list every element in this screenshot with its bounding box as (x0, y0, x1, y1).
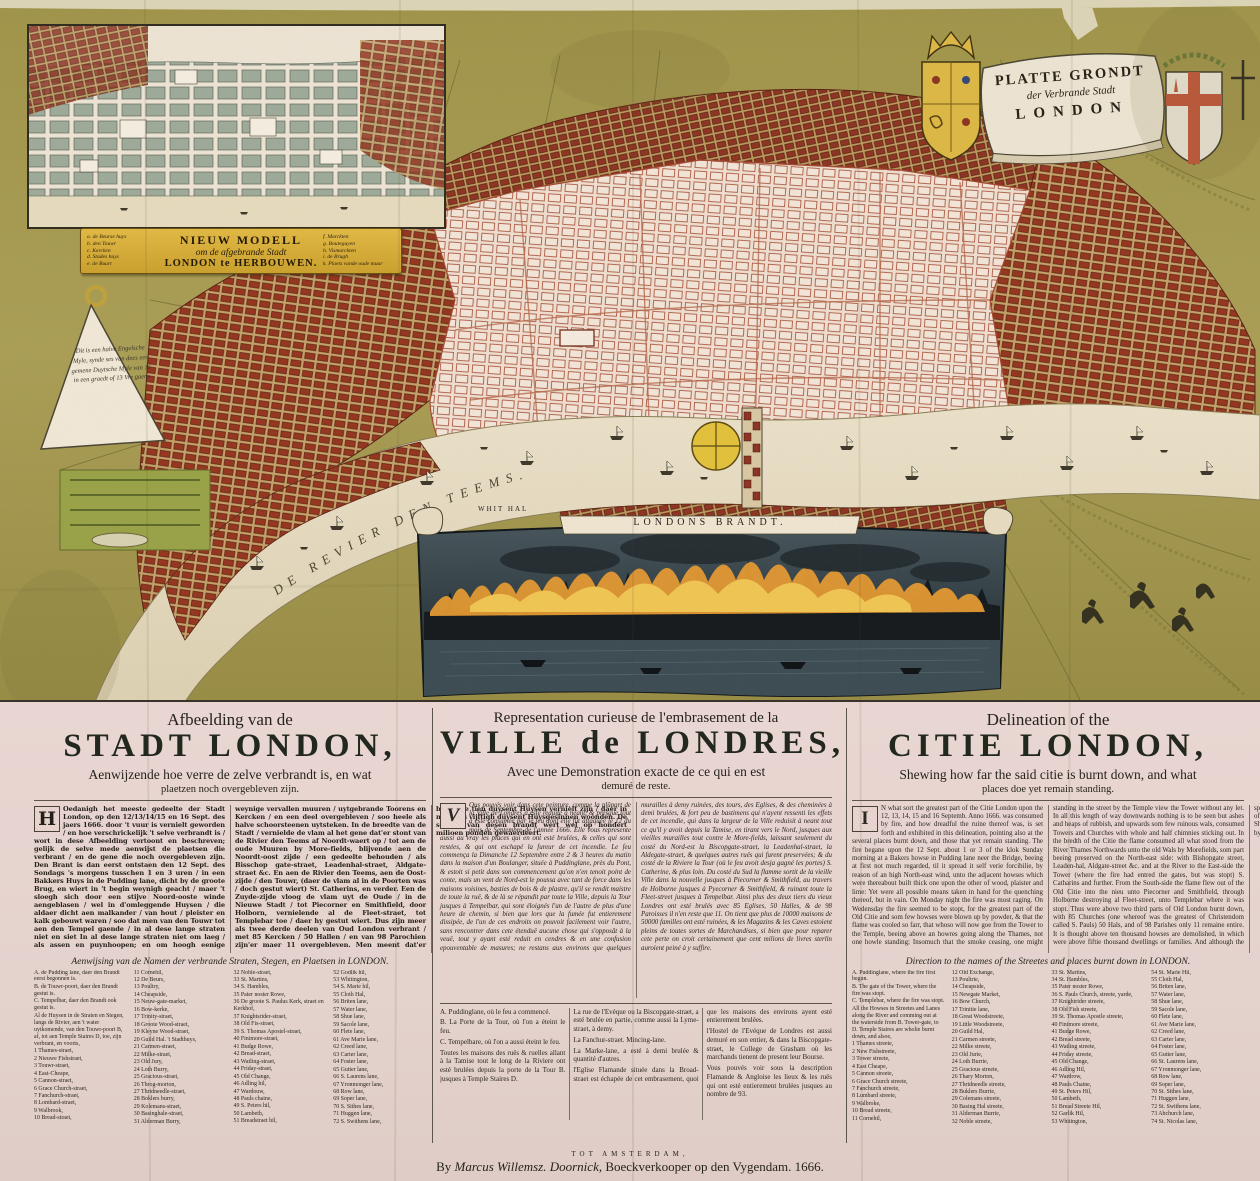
list-item: 12 Old Exchange, (952, 970, 1045, 977)
list-item: 33 St. Martins, (1052, 970, 1145, 977)
list-item: 53 Whitington, (1052, 1119, 1145, 1126)
list-item: 50 Lambeth, (234, 1111, 327, 1118)
list-item: 17 Trinity-straet, (134, 1014, 227, 1021)
french-column: Representation curieuse de l'embrasement… (440, 710, 832, 1120)
list-item: 17 Trinitie lane, (952, 1007, 1045, 1014)
list-item: B. La Porte de la Tour, où l'on a éteint… (440, 1018, 565, 1036)
list-item: 58 Shue lane, (1151, 999, 1244, 1006)
list-item: 68 Row lane, (333, 1089, 426, 1096)
list-item: 56 Briten lane, (333, 999, 426, 1006)
list-item: 46 Adling hil, (234, 1081, 327, 1088)
list-item: 13 Poultrie, (952, 977, 1045, 984)
list-item: 57 Water lane, (333, 1007, 426, 1014)
list-item: 47 Wardouw, (234, 1089, 327, 1096)
list-item: 40 Finimore-straet, (234, 1036, 327, 1043)
french-title: VILLE de LONDRES, (440, 725, 832, 762)
list-item: 52 Godlik hil, (333, 970, 426, 977)
list-item: 54 St. Marie Hil, (1151, 970, 1244, 977)
list-item: La Marke-lane, a esté à demi brulée & qu… (573, 1047, 698, 1065)
list-item: 9 Walbrook, (34, 1108, 127, 1115)
list-item: 30 Basing Hal streete, (952, 1104, 1045, 1111)
list-item: C. Tempelbare, où l'on a aussi éteint le… (440, 1038, 565, 1047)
list-item: 1 Thames-straet, (34, 1048, 127, 1055)
list-item: g. Bouteguyen (323, 241, 395, 248)
list-item: 55 Cloth Hal, (1151, 977, 1244, 984)
list-item: 38 Old Fis-straet, (234, 1021, 327, 1028)
list-item: 37 Knightrider streete, (1052, 999, 1145, 1006)
dutch-title: STADT LONDON, (34, 728, 426, 765)
list-item: 23 Old Jury, (134, 1059, 227, 1066)
list-item: 40 Finimore streete, (1052, 1022, 1145, 1029)
inset-legend-right: f. Marckteng. Bouteguyenh. Vismarckteni.… (323, 234, 395, 269)
dutch-subtitle2: plaetzen noch overgebleven zijn. (34, 784, 426, 795)
list-item: 9 Walbroke, (852, 1101, 945, 1108)
list-item: k. Plaets vande oude muur (323, 261, 395, 268)
dutch-subtitle: Aenwijzende hoe verre de zelve verbrandt… (34, 767, 426, 783)
list-item: B. de Touwr-poort, daer den Brandt gestu… (34, 984, 127, 998)
dutch-kicker: Afbeelding van de (34, 710, 426, 730)
list-item: 21 Carmen streete, (952, 1037, 1045, 1044)
imprint-suffix: Boeckverkooper op den Vygendam. 1666. (602, 1159, 824, 1174)
list-item: 5 Cannon-straet, (34, 1078, 127, 1085)
list-item: 21 Carmen-straet, (134, 1044, 227, 1051)
inset-title-banner: a. de Beurse huysb. den Touwrc. Kerckend… (80, 228, 402, 274)
list-item: 26 Thary Morton, (952, 1074, 1045, 1081)
list-item: 7 Fanchurch-straet, (34, 1093, 127, 1100)
list-item: 49 S. Peters hil, (234, 1103, 327, 1110)
list-item: b. den Touwr (87, 241, 159, 248)
list-item: 10 Bread streete, (852, 1108, 945, 1115)
list-item: 22 Milke streete, (952, 1044, 1045, 1051)
french-notes: A. Puddinglane, où le feu a commencé.B. … (440, 1008, 832, 1120)
list-item: A. Puddinglane, où le feu a commencé. (440, 1008, 565, 1017)
imprint-name: Marcus Willemsz. Doornick, (455, 1159, 603, 1174)
list-item: C. Tempelbar, daer den Brandt ook gestut… (34, 998, 127, 1012)
column-rule (846, 708, 847, 1143)
list-item: 71 Huggen lane, (1151, 1096, 1244, 1103)
list-item: 31 Alderman Burrie, (952, 1111, 1045, 1118)
list-item: 25 Gracious streete, (952, 1067, 1045, 1074)
dutch-body-col1: Oedanigh het meeste gedeelte der Stadt L… (34, 805, 225, 942)
column-rule (432, 708, 433, 1143)
list-item: La Fanchur-straet. Mincing-lane. (573, 1036, 698, 1045)
dutch-list-heading: Aenwijsing van de Namen der verbrande St… (34, 957, 426, 967)
list-item: 54 S. Marie hil, (333, 984, 426, 991)
english-subtitle2: places doe yet remain standing. (852, 784, 1244, 795)
map-sheet: DE REVIER DEN TEEMS. (0, 0, 1260, 1181)
list-item: 3 Touwr-straet, (34, 1063, 127, 1070)
list-item: 29 Kolemans-straet, (134, 1104, 227, 1111)
list-item: 47 Wardrow, (1052, 1074, 1145, 1081)
list-item: 3 Tower streete, (852, 1056, 945, 1063)
list-item: 39 S. Thomas Apostel-straet, (234, 1029, 327, 1036)
list-item: 46 Adling Hil, (1052, 1067, 1145, 1074)
map-title-banner: PLATTE GRONDT der Verbrande Stadt LONDON (989, 63, 1154, 152)
list-item: 51 Breadstraet hil, (234, 1118, 327, 1125)
list-item: 33 St. Martins, (234, 977, 327, 984)
list-item: 48 Pauls chaine, (234, 1096, 327, 1103)
list-item: 4 East-Cheape, (34, 1071, 127, 1078)
list-item: 41 Budge Rowe, (234, 1044, 327, 1051)
english-title: CITIE LONDON, (852, 728, 1244, 765)
list-item: 24 Loth Burrie, (952, 1059, 1045, 1066)
list-item: A. Puddinglane, where the fire first beg… (852, 970, 945, 984)
list-item: 37 Knightsrider-straet, (234, 1014, 327, 1021)
list-item: 50 Lambeth, (1052, 1096, 1145, 1103)
list-item: 61 Ave Marie lane, (333, 1037, 426, 1044)
list-item: 16 Bow-kerke, (134, 1007, 227, 1014)
list-item: 56 Briten lane, (1151, 984, 1244, 991)
list-item: 59 Sacole lane, (333, 1022, 426, 1029)
list-item: 69 Soper lane, (333, 1096, 426, 1103)
list-item: 41 Budge Rowe, (1052, 1029, 1145, 1036)
list-item: 8 Lombard-straet, (34, 1100, 127, 1107)
whitehall-label: WHIT HAL (478, 505, 528, 513)
list-item: 38 Old Fish streete, (1052, 1007, 1145, 1014)
list-item: i. de Brugh (323, 254, 395, 261)
list-item: 67 Yronmonger lane, (1151, 1067, 1244, 1074)
list-item: 19 Kleyne Wood-straet, (134, 1029, 227, 1036)
list-item: 66 St. Laurens lane, (1151, 1059, 1244, 1066)
list-item: 27 Thridneedle-straet, (134, 1089, 227, 1096)
french-subtitle2: demuré de reste. (440, 781, 832, 792)
list-item: 14 Cheapside, (134, 992, 227, 999)
list-item: 15 Neuw-gate-market, (134, 999, 227, 1006)
dutch-dropcap: H (34, 806, 60, 832)
list-item: 34 St. Hambles, (1052, 977, 1145, 984)
list-item: 11 Cornehil, (852, 1116, 945, 1123)
rule (440, 1003, 832, 1004)
list-item: Al de Huysen in de Straten en Stegen, la… (34, 1013, 127, 1048)
list-item: 20 Guild Hal. 't Stadthuys, (134, 1037, 227, 1044)
english-body: IN what sort the greatest part of the Ci… (852, 805, 1244, 953)
list-item: 42 Bread-straet, (234, 1051, 327, 1058)
list-item: 65 Gutter lane, (1151, 1052, 1244, 1059)
list-item: 53 Whitington, (333, 977, 426, 984)
list-item: All the Howses in Streetes and Lanes alo… (852, 1006, 945, 1041)
dutch-body: HOedanigh het meeste gedeelte der Stadt … (34, 805, 426, 953)
french-subtitle: Avec une Demonstration exacte de ce qui … (440, 764, 832, 780)
list-item: 27 Thridneedle streete, (952, 1082, 1045, 1089)
list-item: 68 Row lane, (1151, 1074, 1244, 1081)
list-item: La rue de l'Evéque ou la Biscopgate-stra… (573, 1008, 698, 1034)
inset-title-line3: LONDON te HERBOUWEN. (159, 258, 323, 269)
list-item: l'Hostel de l'Evéque de Londres est auss… (707, 1027, 832, 1062)
list-item: 8 Lumbard streete, (852, 1093, 945, 1100)
scale-note: Dit is een halve Engelsche Myle, synde s… (55, 342, 167, 387)
english-subtitle: Shewing how far the said citie is burnt … (852, 767, 1244, 783)
list-item: 60 Flete lane, (333, 1029, 426, 1036)
inset-title: NIEUW MODELL om de afgebrande Stadt LOND… (159, 233, 323, 269)
list-item: 45 Old Change, (1052, 1059, 1145, 1066)
list-item: 34 S. Hambles, (234, 984, 327, 991)
list-item: 26 Throg-morton, (134, 1082, 227, 1089)
list-item: 29 Colemans streete, (952, 1096, 1045, 1103)
list-item: 13 Poultry, (134, 984, 227, 991)
list-item: 43 Watling-straet, (234, 1059, 327, 1066)
list-item: 35 Pater noster Rowe, (1052, 984, 1145, 991)
list-item: 6 Grace Church-straet, (34, 1086, 127, 1093)
english-column: Delineation of the CITIE LONDON, Shewing… (852, 710, 1244, 1128)
list-item: 5 Cannon streete, (852, 1071, 945, 1078)
list-item: 28 Boklers burry, (134, 1096, 227, 1103)
list-item: h. Vismarckten (323, 248, 395, 255)
list-item: c. Kercken (87, 248, 159, 255)
list-item: 16 Bow Church, (952, 999, 1045, 1006)
list-item: 65 Gutter lane, (333, 1067, 426, 1074)
list-item: 72 St. Swithens lane, (1151, 1104, 1244, 1111)
list-item: 70 St. Sithes lane, (1151, 1089, 1244, 1096)
list-item: 44 Friday streete, (1052, 1052, 1145, 1059)
english-dropcap: I (852, 806, 878, 832)
list-item: 18 Great Woodstreete, (952, 1014, 1045, 1021)
inset-legend-left: a. de Beurse huysb. den Touwrc. Kerckend… (87, 234, 159, 269)
list-item: 59 Sacole lane, (1151, 1007, 1244, 1014)
french-body: VOus pouvés voir dans cete peinture, com… (440, 802, 832, 998)
list-item: 22 Milke-straet, (134, 1052, 227, 1059)
list-item: 63 Carter lane, (333, 1052, 426, 1059)
list-item: 10 Bread-straet, (34, 1115, 127, 1122)
list-item: 2 New Fishstreete, (852, 1049, 945, 1056)
list-item: 20 Guild Hal, (952, 1029, 1045, 1036)
imprint-place: TOT AMSTERDAM, (330, 1150, 930, 1158)
list-item: d. Stades huys (87, 254, 159, 261)
list-item: 58 Shue lane, (333, 1014, 426, 1021)
list-item: A. de Pudding lane, daer den Brandt eers… (34, 970, 127, 984)
list-item: 4 East Cheape, (852, 1064, 945, 1071)
list-item: 15 Newgate Market, (952, 992, 1045, 999)
rule (440, 797, 832, 798)
list-item: 60 Flete lane, (1151, 1014, 1244, 1021)
list-item: a. de Beurse huys (87, 234, 159, 241)
list-item: 48 Pauls Chaine, (1052, 1082, 1145, 1089)
list-item: 32 Noble streete, (952, 1119, 1045, 1126)
list-item: C. Templebar, where the fire was stopt. (852, 998, 945, 1005)
list-item: e. de Buurt (87, 261, 159, 268)
list-item: 70 S. Sithes lane, (333, 1104, 426, 1111)
english-list-heading: Direction to the names of the Streetes a… (852, 957, 1244, 967)
list-item: 32 Noble-straet, (234, 970, 327, 977)
list-item: 36 S. Pauls Church, streete, yarde, (1052, 992, 1145, 999)
inset-title-line2: om de afgebrande Stadt (159, 248, 323, 258)
rule (852, 800, 1244, 801)
list-item: 24 Loth Burry, (134, 1067, 227, 1074)
list-item: 14 Cheapside, (952, 984, 1045, 991)
list-item: 49 St. Peters Hil, (1052, 1089, 1145, 1096)
dutch-column: Afbeelding van de STADT LONDON, Aenwijze… (34, 710, 426, 1128)
list-item: 55 Cloth Hal, (333, 992, 426, 999)
list-item: 62 Creed lane, (1151, 1029, 1244, 1036)
list-item: 63 Carter lane, (1151, 1037, 1244, 1044)
list-item: 42 Bread streete, (1052, 1037, 1145, 1044)
list-item: 7 Fanchurch streete, (852, 1086, 945, 1093)
list-item: 45 Old Change, (234, 1074, 327, 1081)
list-item: B. The gate of the Tower, where the fire… (852, 984, 945, 998)
list-item: 30 Basinghale-straet, (134, 1111, 227, 1118)
list-item: 12 De Beurs, (134, 977, 227, 984)
list-item: 64 Foster lane, (333, 1059, 426, 1066)
dutch-street-list: A. de Pudding lane, daer den Brandt eers… (34, 970, 426, 1128)
english-body-col2: this length of way downwards nothing is … (1053, 805, 1260, 947)
list-item: 52 Garlik Hil, (1052, 1111, 1145, 1118)
list-item: 6 Grace Church streete, (852, 1079, 945, 1086)
list-item: 43 Watling streete, (1052, 1044, 1145, 1051)
list-item: 25 Gracious-straet, (134, 1074, 227, 1081)
imprint-by: By (436, 1159, 454, 1174)
list-item: 2 Nieuwe Fishstraet, (34, 1056, 127, 1063)
english-street-list: A. Puddinglane, where the fire first beg… (852, 970, 1244, 1128)
imprint-publisher: By Marcus Willemsz. Doornick, Boeckverko… (330, 1159, 930, 1175)
list-item: 23 Old Jurie, (952, 1052, 1045, 1059)
french-body-col1: Ous pouvés voir dans cete peinture, comm… (440, 802, 631, 935)
list-item: 74 St. Nicolas lane, (1151, 1119, 1244, 1126)
list-item: 69 Soper lane, (1151, 1082, 1244, 1089)
list-item: 67 Yronmonger lane, (333, 1082, 426, 1089)
list-item: 18 Groote Wood-straet, (134, 1022, 227, 1029)
list-item: 28 Buklers Burrie, (952, 1089, 1045, 1096)
list-item: 51 Bread Streete Hil, (1052, 1104, 1145, 1111)
list-item: 35 Pater noster Rowe, (234, 992, 327, 999)
list-item: 62 Creed lane, (333, 1044, 426, 1051)
list-item: 44 Friday-straet, (234, 1066, 327, 1073)
imprint: TOT AMSTERDAM, By Marcus Willemsz. Doorn… (330, 1150, 930, 1175)
list-item: 11 Cornehil, (134, 970, 227, 977)
english-kicker: Delineation of the (852, 710, 1244, 730)
description-panel: Afbeelding van de STADT LONDON, Aenwijze… (0, 700, 1260, 1181)
french-dropcap: V (440, 803, 466, 829)
list-item: 66 S. Laurens lane, (333, 1074, 426, 1081)
list-item: 19 Little Woodstreete, (952, 1022, 1045, 1029)
list-item: 39 St. Thomas Apostle streete, (1052, 1014, 1145, 1021)
list-item: 64 Foster lane, (1151, 1044, 1244, 1051)
list-item: 1 Thames streete, (852, 1041, 945, 1048)
list-item: f. Marckten (323, 234, 395, 241)
list-item: 71 Huggen lane, (333, 1111, 426, 1118)
list-item: Toutes les maisons des ruës & ruelles al… (440, 1049, 565, 1084)
list-item: 61 Ave Marie lane, (1151, 1022, 1244, 1029)
list-item: 36 De groote S. Paulus Kerk, straet en K… (234, 999, 327, 1013)
list-item: Vous pouvés voir sous la description Fla… (707, 1064, 832, 1099)
list-item: 73 Abchurch lane, (1151, 1111, 1244, 1118)
list-item: 57 Water lane, (1151, 992, 1244, 999)
rule (34, 800, 426, 801)
list-item: 31 Alderman Burry, (134, 1119, 227, 1126)
inset-title-line1: NIEUW MODELL (159, 233, 323, 248)
list-item: 72 S. Swithens lane, (333, 1119, 426, 1126)
fire-panorama-caption: LONDONS BRANDT. (560, 517, 860, 528)
